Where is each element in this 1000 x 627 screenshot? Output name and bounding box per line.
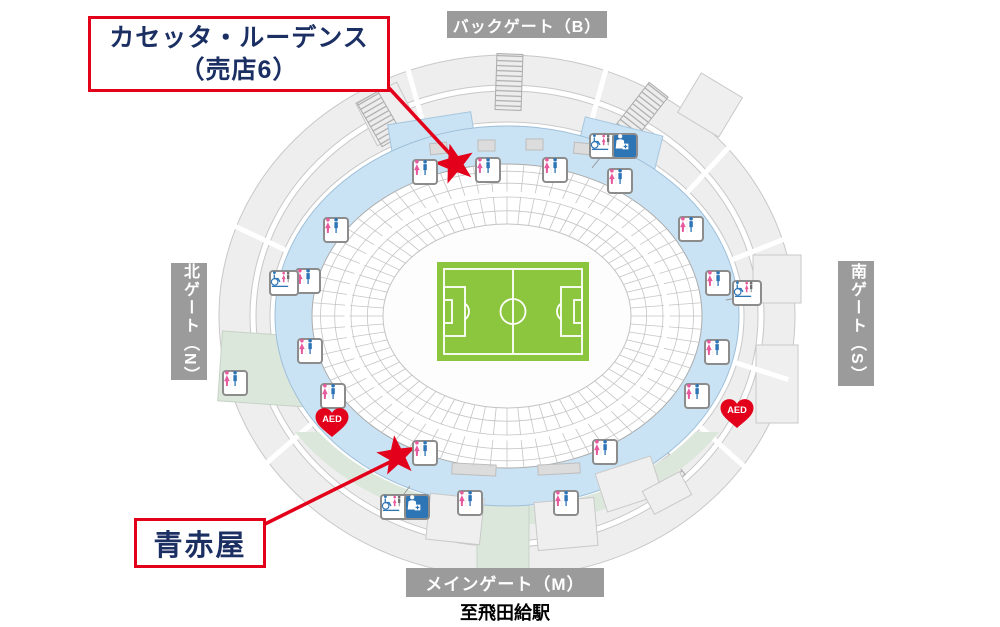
shop-callout-aoakaya: 青赤屋	[134, 518, 266, 568]
restroom-icon	[475, 157, 501, 183]
restroom-icon	[553, 490, 579, 516]
restroom-icon	[542, 157, 568, 183]
aed-label: AED	[727, 405, 747, 415]
restroom-icon	[684, 383, 710, 409]
gate-label-back: バックゲート（B）	[447, 11, 607, 38]
first-aid-room-icon	[404, 494, 430, 520]
accessible-toilet-icon	[269, 270, 299, 296]
first-aid-room-icon	[612, 133, 638, 159]
stadium-map: AED AED カセッタ・ルーデンス （売店6） 青赤屋 バックゲート（B） 北…	[0, 0, 1000, 627]
restroom-icon	[412, 440, 438, 466]
restroom-icon	[297, 338, 323, 364]
restroom-icon	[678, 216, 704, 242]
restroom-icon	[704, 339, 730, 365]
restroom-icon	[607, 168, 633, 194]
restroom-icon	[457, 490, 483, 516]
restroom-icon	[705, 270, 731, 296]
shop-number: （売店6）	[91, 54, 387, 87]
gate-label-main: メインゲート（M）	[406, 568, 604, 597]
restroom-icon	[592, 439, 618, 465]
shop-name: カセッタ・ルーデンス	[91, 22, 387, 55]
gate-label-north: 北ゲート（N）	[171, 263, 207, 380]
aed-label: AED	[322, 414, 342, 424]
shop-name: 青赤屋	[137, 522, 263, 564]
accessible-toilet-icon	[732, 280, 762, 306]
restroom-icon	[412, 159, 438, 185]
gate-label-south: 南ゲート（S）	[838, 261, 874, 386]
station-note: 至飛田給駅	[420, 599, 590, 625]
restroom-icon	[323, 217, 349, 243]
shop-callout-cassetta-ludens: カセッタ・ルーデンス （売店6）	[88, 16, 390, 92]
restroom-icon	[222, 370, 248, 396]
